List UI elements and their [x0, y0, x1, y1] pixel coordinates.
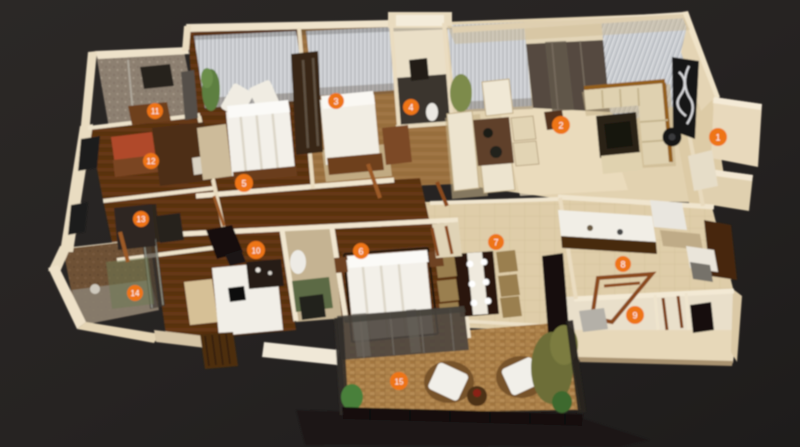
svg-text:8: 8	[620, 260, 625, 270]
svg-text:15: 15	[395, 378, 404, 387]
svg-text:6: 6	[358, 247, 363, 257]
svg-text:1: 1	[715, 133, 720, 143]
svg-text:2: 2	[558, 121, 563, 131]
svg-text:4: 4	[408, 103, 413, 113]
svg-text:10: 10	[252, 247, 261, 256]
svg-text:5: 5	[241, 179, 246, 189]
svg-text:14: 14	[131, 289, 140, 298]
svg-text:3: 3	[333, 97, 338, 107]
svg-text:11: 11	[151, 107, 160, 116]
svg-text:12: 12	[147, 157, 156, 166]
svg-text:7: 7	[493, 238, 498, 248]
svg-text:9: 9	[632, 311, 637, 321]
svg-text:13: 13	[137, 215, 146, 224]
